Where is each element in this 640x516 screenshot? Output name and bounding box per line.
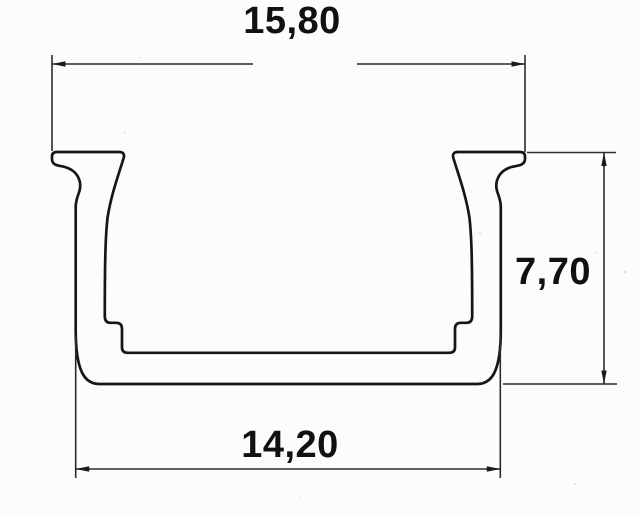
dimension-label-bottom-width: 14,20 (241, 424, 339, 466)
arrowhead-right (512, 61, 526, 66)
arrowhead-left (52, 61, 66, 66)
profile-cross-section-drawing: 15,80 7,70 14,20 (0, 0, 640, 516)
arrowhead-right (487, 466, 501, 471)
dimension-label-side-height: 7,70 (515, 251, 591, 293)
technical-drawing-canvas: 15,80 7,70 14,20 (0, 0, 640, 516)
dimension-top-width: 15,80 (52, 0, 525, 152)
arrowhead-down (601, 371, 606, 385)
arrowhead-up (601, 153, 606, 167)
profile-shape (52, 152, 525, 384)
dimension-label-top-width: 15,80 (243, 0, 341, 42)
arrowhead-left (76, 466, 90, 471)
profile-outline (52, 152, 525, 384)
dimension-side-height: 7,70 (503, 153, 617, 385)
